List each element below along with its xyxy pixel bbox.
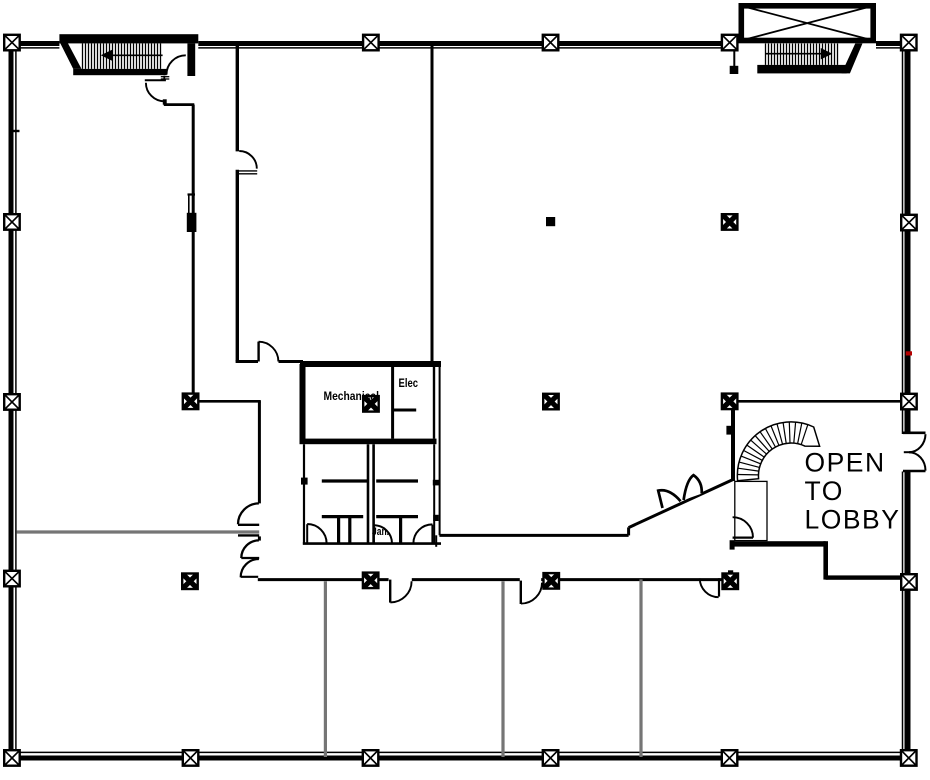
svg-text:Jan.: Jan. [372,526,389,538]
svg-text:Elec: Elec [399,376,419,390]
svg-text:OPEN: OPEN [805,448,886,478]
svg-text:Mechanical: Mechanical [324,389,380,403]
svg-text:TO: TO [805,476,844,506]
svg-text:LOBBY: LOBBY [805,505,901,535]
